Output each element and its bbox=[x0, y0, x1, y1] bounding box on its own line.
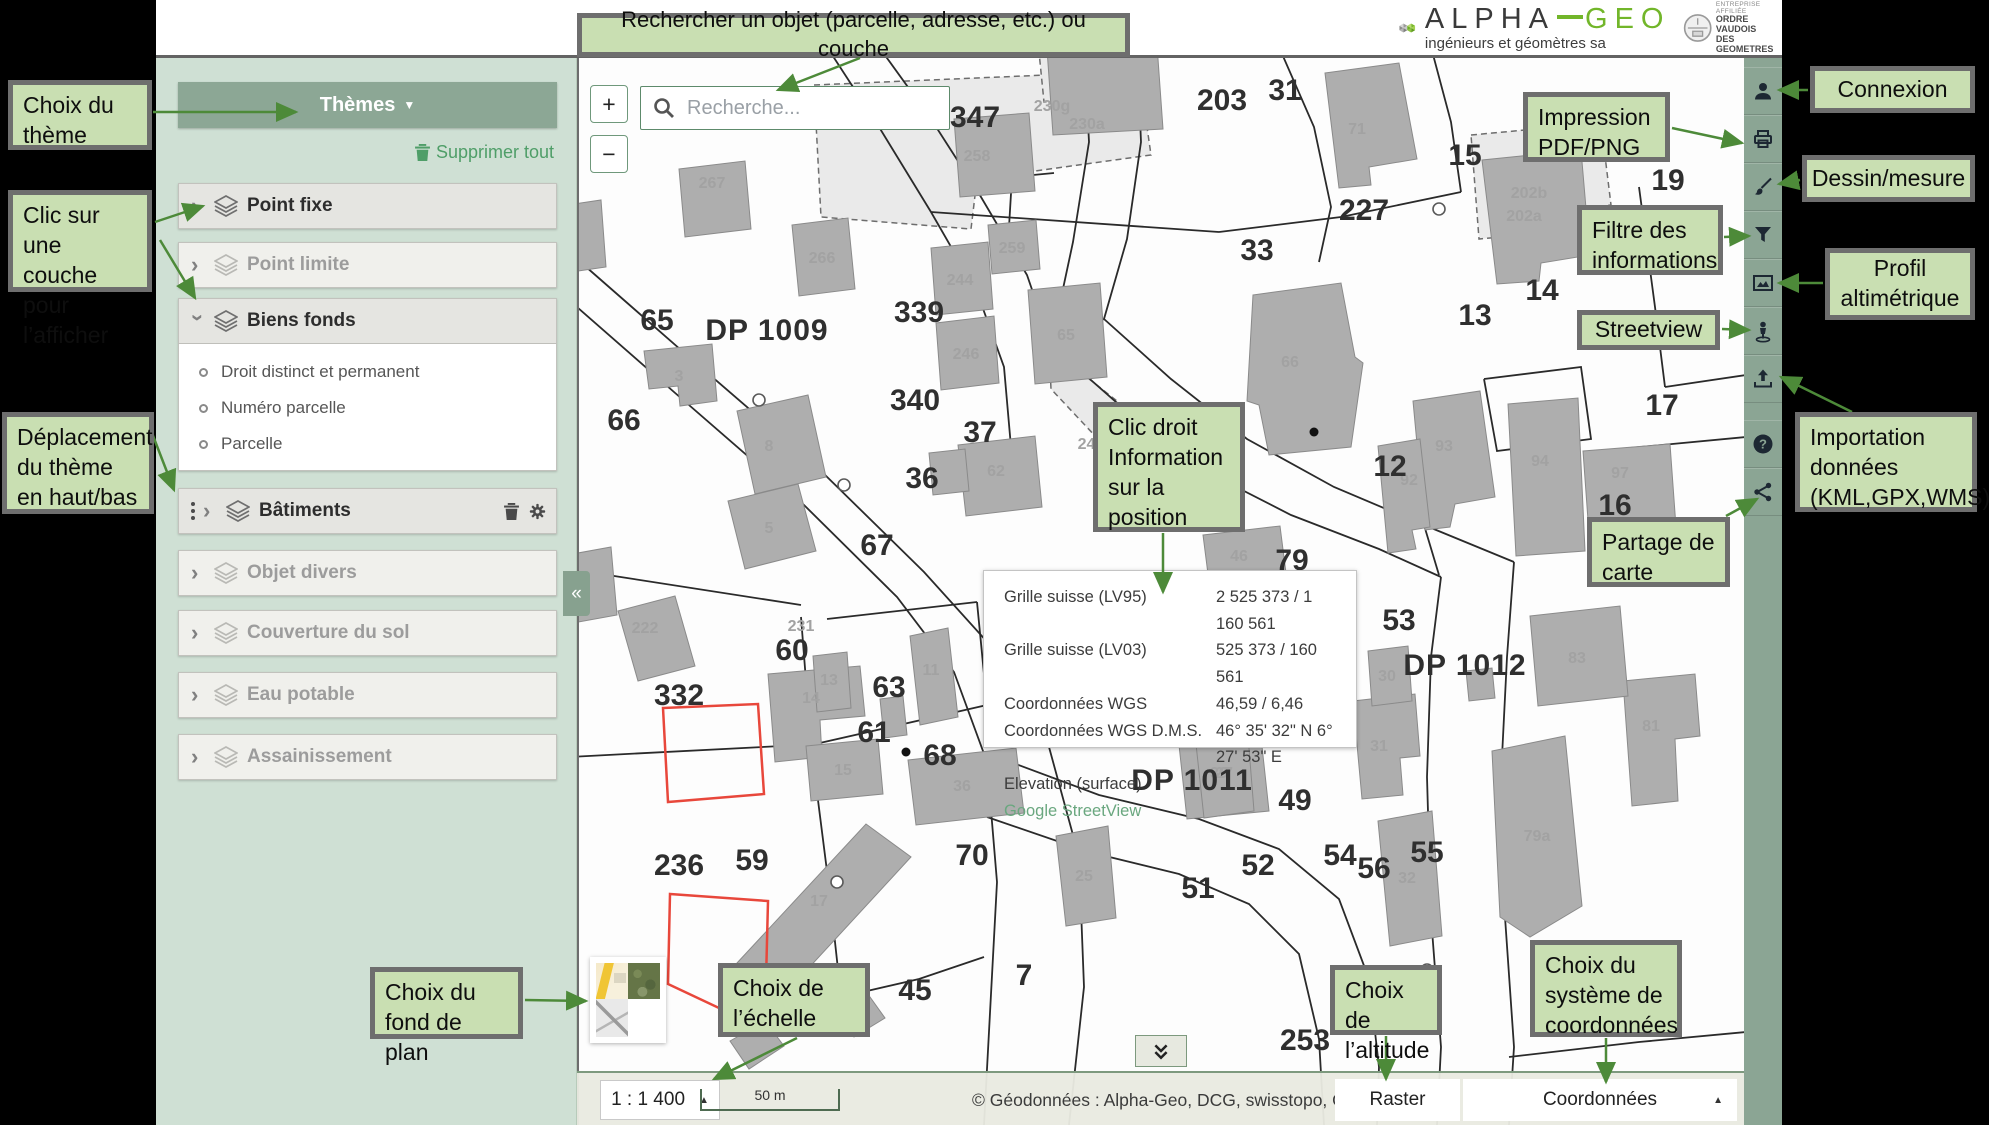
svg-text:244: 244 bbox=[947, 272, 974, 289]
brand-accent: GEO bbox=[1585, 3, 1670, 35]
popup-row-value: 46° 35' 32" N 6° 27' 53" E bbox=[1216, 718, 1338, 771]
callout-import: Importation données (KML,GPX,WMS) bbox=[1795, 412, 1977, 512]
sublayer-numero-parcelle[interactable]: Numéro parcelle bbox=[179, 390, 556, 426]
svg-text:97: 97 bbox=[1611, 465, 1629, 482]
svg-text:36: 36 bbox=[953, 778, 971, 795]
svg-text:230g: 230g bbox=[1034, 98, 1070, 115]
svg-text:36: 36 bbox=[905, 462, 938, 495]
svg-text:66: 66 bbox=[607, 404, 640, 437]
map-attribution: © Géodonnées : Alpha-Geo, DCG, swisstopo… bbox=[972, 1073, 1372, 1125]
logo-hexagons-icon bbox=[1398, 1, 1417, 55]
svg-text:202a: 202a bbox=[1506, 208, 1542, 225]
svg-text:54: 54 bbox=[1323, 839, 1357, 872]
layer-label: Bâtiments bbox=[259, 500, 351, 522]
scale-bar-label: 50 m bbox=[702, 1087, 838, 1103]
chevron-right-icon[interactable]: › bbox=[191, 252, 205, 278]
svg-text:53: 53 bbox=[1382, 604, 1415, 637]
badge-seal-icon bbox=[1683, 10, 1712, 46]
altitude-select[interactable]: Raster bbox=[1335, 1079, 1460, 1121]
app-canvas: ALPHAGEO ingénieurs et géomètres sa ENTR… bbox=[0, 0, 1989, 1125]
svg-text:246: 246 bbox=[953, 346, 980, 363]
svg-text:79a: 79a bbox=[1524, 828, 1551, 845]
popup-row-value bbox=[1216, 771, 1338, 798]
layer-label: Point limite bbox=[247, 254, 349, 276]
layer-row-biens-fonds[interactable]: ›Biens fonds bbox=[178, 298, 557, 344]
svg-text:17: 17 bbox=[810, 893, 828, 910]
popup-row-label: Grille suisse (LV03) bbox=[1004, 637, 1216, 690]
radio-circle-icon bbox=[199, 368, 208, 377]
svg-text:66: 66 bbox=[1281, 354, 1299, 371]
double-chevron-down-icon bbox=[1152, 1042, 1170, 1060]
svg-text:65: 65 bbox=[1057, 327, 1075, 344]
layers-icon bbox=[214, 562, 238, 584]
layers-icon bbox=[214, 684, 238, 706]
chevron-right-icon[interactable]: › bbox=[191, 193, 205, 219]
svg-text:59: 59 bbox=[735, 844, 768, 877]
search-icon bbox=[653, 97, 675, 119]
person-icon bbox=[1751, 79, 1775, 103]
chevron-right-icon[interactable]: › bbox=[191, 620, 205, 646]
clear-all-label: Supprimer tout bbox=[436, 142, 554, 163]
gear-icon[interactable] bbox=[529, 503, 546, 520]
svg-text:266: 266 bbox=[809, 250, 836, 267]
svg-text:70: 70 bbox=[955, 839, 988, 872]
sublayer-label: Numéro parcelle bbox=[221, 398, 346, 418]
popup-row-value: 46,59 / 6,46 bbox=[1216, 691, 1338, 718]
drag-handle-icon[interactable] bbox=[191, 502, 195, 520]
streetview-button[interactable] bbox=[1744, 307, 1782, 355]
popup-row-value: 525 373 / 160 561 bbox=[1216, 637, 1338, 690]
upload-icon bbox=[1751, 367, 1775, 391]
callout-profile: Profil altimétrique bbox=[1825, 248, 1975, 320]
callout-streetview: Streetview bbox=[1577, 310, 1720, 350]
layer-row-batiments[interactable]: ›Bâtiments bbox=[178, 488, 557, 534]
layer-label: Biens fonds bbox=[247, 310, 356, 332]
svg-text:5: 5 bbox=[765, 520, 774, 537]
layer-label: Eau potable bbox=[247, 684, 355, 706]
themes-dropdown-button[interactable]: Thèmes ▼ bbox=[178, 82, 557, 128]
svg-text:17: 17 bbox=[1645, 389, 1678, 422]
svg-text:347: 347 bbox=[950, 101, 1000, 134]
layer-row-eau-potable[interactable]: ›Eau potable bbox=[178, 672, 557, 718]
callout-draw: Dessin/mesure bbox=[1802, 155, 1975, 202]
svg-text:202b: 202b bbox=[1511, 185, 1548, 202]
svg-text:14: 14 bbox=[1525, 274, 1559, 307]
sublayer-label: Droit distinct et permanent bbox=[221, 362, 419, 382]
svg-text:13: 13 bbox=[820, 672, 838, 689]
import-data-button[interactable] bbox=[1744, 355, 1782, 403]
search-input[interactable] bbox=[685, 96, 915, 121]
brand-subtitle: ingénieurs et géomètres sa bbox=[1425, 36, 1671, 51]
chevron-right-icon[interactable]: › bbox=[185, 314, 211, 328]
svg-text:31: 31 bbox=[1370, 738, 1388, 755]
svg-text:62: 62 bbox=[987, 463, 1005, 480]
caret-up-icon: ▲ bbox=[1713, 1095, 1723, 1106]
layers-icon bbox=[214, 746, 238, 768]
coordinate-system-select[interactable]: Coordonnées ▲ bbox=[1463, 1079, 1737, 1121]
sublayer-label: Parcelle bbox=[221, 434, 282, 454]
callout-basemap: Choix du fond de plan bbox=[370, 967, 523, 1039]
basemap-blank-preview[interactable] bbox=[628, 999, 660, 1037]
layers-icon bbox=[226, 500, 250, 522]
chevron-right-icon[interactable]: › bbox=[191, 682, 205, 708]
svg-text:32: 32 bbox=[1398, 870, 1416, 887]
svg-text:52: 52 bbox=[1241, 849, 1274, 882]
svg-text:?: ? bbox=[1759, 437, 1767, 452]
popup-row: Grille suisse (LV03)525 373 / 160 561 bbox=[1004, 637, 1338, 690]
svg-text:8: 8 bbox=[765, 438, 774, 455]
svg-text:15: 15 bbox=[1448, 139, 1481, 172]
radio-circle-icon bbox=[199, 404, 208, 413]
layers-icon bbox=[214, 254, 238, 276]
popup-row-value: 2 525 373 / 1 160 561 bbox=[1216, 584, 1338, 637]
zoom-in-button[interactable]: + bbox=[590, 85, 628, 123]
trash-icon[interactable] bbox=[504, 503, 519, 520]
funnel-icon bbox=[1751, 223, 1775, 247]
svg-text:332: 332 bbox=[654, 679, 704, 712]
google-streetview-link[interactable]: Google StreetView bbox=[1004, 798, 1338, 825]
popup-row-label: Coordonnées WGS bbox=[1004, 691, 1216, 718]
print-button[interactable] bbox=[1744, 115, 1782, 163]
svg-text:83: 83 bbox=[1568, 650, 1586, 667]
clear-all-button[interactable]: Supprimer tout bbox=[415, 142, 554, 163]
popup-row: Grille suisse (LV95)2 525 373 / 1 160 56… bbox=[1004, 584, 1338, 637]
themes-panel: Thèmes ▼ Supprimer tout ›Point fixe›Poin… bbox=[156, 57, 577, 1125]
svg-text:30: 30 bbox=[1378, 668, 1396, 685]
zoom-out-button[interactable]: − bbox=[590, 135, 628, 173]
basemap-bw-preview[interactable] bbox=[596, 999, 628, 1037]
popup-row: Coordonnées WGS46,59 / 6,46 bbox=[1004, 691, 1338, 718]
status-bar: 1 : 1 400 ▲ 50 m © Géodonnées : Alpha-Ge… bbox=[577, 1071, 1744, 1125]
svg-text:203: 203 bbox=[1197, 84, 1247, 117]
caret-down-icon: ▼ bbox=[403, 98, 415, 112]
badge-line-1: ENTREPRISE AFFILIÉE bbox=[1716, 1, 1780, 15]
svg-text:258: 258 bbox=[964, 148, 991, 165]
help-button[interactable]: ? bbox=[1744, 420, 1782, 468]
callout-theme-choice: Choix du thème bbox=[8, 80, 152, 150]
svg-text:93: 93 bbox=[1435, 438, 1453, 455]
layer-label: Couverture du sol bbox=[247, 622, 410, 644]
affiliation-badge: ENTREPRISE AFFILIÉE ORDRE VAUDOIS DES GE… bbox=[1683, 1, 1781, 55]
layer-label: Assainissement bbox=[247, 746, 392, 768]
login-button[interactable] bbox=[1744, 67, 1782, 115]
svg-text:37: 37 bbox=[963, 416, 996, 449]
callout-print: Impression PDF/PNG bbox=[1523, 92, 1670, 162]
popup-row-label: Elevation (surface) bbox=[1004, 771, 1216, 798]
svg-text:94: 94 bbox=[1531, 453, 1549, 470]
svg-text:DP 1009: DP 1009 bbox=[705, 314, 828, 347]
svg-text:227: 227 bbox=[1339, 194, 1389, 227]
layers-icon bbox=[214, 310, 238, 332]
svg-text:65: 65 bbox=[640, 304, 673, 337]
scale-bar: 50 m bbox=[700, 1089, 840, 1111]
layer-row-point-limite[interactable]: ›Point limite bbox=[178, 242, 557, 288]
badge-line-3: DES GEOMETRES bbox=[1716, 35, 1780, 55]
svg-text:259: 259 bbox=[999, 240, 1026, 257]
chevron-right-icon[interactable]: › bbox=[203, 498, 217, 524]
svg-text:33: 33 bbox=[1240, 234, 1273, 267]
callout-theme-move: Déplacement du thème en haut/bas bbox=[2, 412, 154, 514]
layers-icon bbox=[214, 622, 238, 644]
popup-row-label: Grille suisse (LV95) bbox=[1004, 584, 1216, 637]
svg-text:81: 81 bbox=[1642, 718, 1660, 735]
brush-icon bbox=[1751, 175, 1775, 199]
position-info-popup: Grille suisse (LV95)2 525 373 / 1 160 56… bbox=[983, 570, 1357, 748]
svg-text:55: 55 bbox=[1410, 836, 1443, 869]
right-toolbar: ? bbox=[1744, 57, 1782, 1125]
callout-search-hint: Rechercher un objet (parcelle, adresse, … bbox=[577, 13, 1130, 57]
brand-main: ALPHA bbox=[1425, 3, 1555, 35]
svg-text:45: 45 bbox=[898, 974, 931, 1007]
map-search-box[interactable] bbox=[640, 86, 950, 130]
share-icon bbox=[1751, 480, 1775, 504]
basemap-switcher[interactable] bbox=[590, 957, 666, 1043]
area-chart-icon bbox=[1751, 271, 1775, 295]
svg-text:56: 56 bbox=[1357, 852, 1390, 885]
svg-text:60: 60 bbox=[775, 634, 808, 667]
svg-text:267: 267 bbox=[699, 175, 726, 192]
company-logo: ALPHAGEO ingénieurs et géomètres sa ENTR… bbox=[1398, 1, 1780, 55]
svg-text:14: 14 bbox=[802, 690, 820, 707]
statusbar-collapse-button[interactable] bbox=[1135, 1035, 1187, 1067]
svg-text:236: 236 bbox=[654, 849, 704, 882]
help-icon: ? bbox=[1751, 432, 1775, 456]
svg-text:46: 46 bbox=[1230, 548, 1248, 565]
layer-row-point-fixe[interactable]: ›Point fixe bbox=[178, 183, 557, 229]
svg-text:13: 13 bbox=[1458, 299, 1491, 332]
svg-text:7: 7 bbox=[1016, 959, 1033, 992]
sublayer-parcelle[interactable]: Parcelle bbox=[179, 426, 556, 462]
popup-rows: Grille suisse (LV95)2 525 373 / 1 160 56… bbox=[1004, 584, 1338, 798]
brand-dash bbox=[1557, 15, 1583, 19]
callout-connexion: Connexion bbox=[1810, 66, 1975, 113]
callout-coords: Choix du système de coordonnées bbox=[1530, 940, 1682, 1037]
basemap-street-preview[interactable] bbox=[596, 963, 628, 999]
layer-row-assainissement[interactable]: ›Assainissement bbox=[178, 734, 557, 780]
layer-label: Point fixe bbox=[247, 195, 333, 217]
chevron-right-icon[interactable]: › bbox=[191, 744, 205, 770]
svg-text:340: 340 bbox=[890, 384, 940, 417]
sidebar-collapse-button[interactable]: « bbox=[563, 571, 590, 616]
layer-list: ›Point fixe›Point limite›Biens fondsDroi… bbox=[178, 183, 557, 780]
callout-share: Partage de carte bbox=[1587, 517, 1730, 587]
popup-row-label: Coordonnées WGS D.M.S. bbox=[1004, 718, 1216, 771]
svg-text:230a: 230a bbox=[1069, 116, 1105, 133]
sublayer-droit-distinct-et-permanent[interactable]: Droit distinct et permanent bbox=[179, 354, 556, 390]
scale-value: 1 : 1 400 bbox=[611, 1089, 685, 1111]
radio-circle-icon bbox=[199, 440, 208, 449]
svg-text:71: 71 bbox=[1348, 121, 1366, 138]
layers-icon bbox=[214, 195, 238, 217]
svg-text:253: 253 bbox=[1280, 1024, 1330, 1057]
draw-measure-button[interactable] bbox=[1744, 163, 1782, 211]
themes-label: Thèmes bbox=[320, 94, 396, 117]
svg-text:231: 231 bbox=[788, 618, 815, 635]
svg-text:12: 12 bbox=[1373, 450, 1406, 483]
coordinate-system-value: Coordonnées bbox=[1543, 1089, 1657, 1111]
svg-text:68: 68 bbox=[923, 739, 956, 772]
popup-row: Elevation (surface) bbox=[1004, 771, 1338, 798]
elevation-profile-button[interactable] bbox=[1744, 259, 1782, 307]
printer-icon bbox=[1751, 127, 1775, 151]
svg-text:51: 51 bbox=[1181, 872, 1214, 905]
sublayer-panel: Droit distinct et permanentNuméro parcel… bbox=[178, 344, 557, 471]
callout-layer-click: Clic sur une couche pour l’afficher bbox=[8, 190, 152, 292]
share-button[interactable] bbox=[1744, 468, 1782, 516]
svg-text:3: 3 bbox=[675, 368, 684, 385]
trash-icon bbox=[415, 144, 430, 161]
popup-row: Coordonnées WGS D.M.S.46° 35' 32" N 6° 2… bbox=[1004, 718, 1338, 771]
layer-row-couverture-du-sol[interactable]: ›Couverture du sol bbox=[178, 610, 557, 656]
svg-text:222: 222 bbox=[632, 620, 659, 637]
callout-scale: Choix de l’échelle bbox=[718, 963, 870, 1037]
filter-button[interactable] bbox=[1744, 211, 1782, 259]
basemap-aerial-preview[interactable] bbox=[628, 963, 660, 999]
svg-text:19: 19 bbox=[1651, 164, 1684, 197]
layer-label: Objet divers bbox=[247, 562, 357, 584]
svg-text:31: 31 bbox=[1268, 74, 1301, 107]
pegman-icon bbox=[1751, 319, 1775, 343]
layer-row-objet-divers[interactable]: ›Objet divers bbox=[178, 550, 557, 596]
svg-text:61: 61 bbox=[857, 716, 890, 749]
chevron-right-icon[interactable]: › bbox=[191, 560, 205, 586]
svg-text:DP 1012: DP 1012 bbox=[1403, 649, 1526, 682]
svg-text:63: 63 bbox=[872, 671, 905, 704]
svg-text:15: 15 bbox=[834, 762, 852, 779]
svg-text:25: 25 bbox=[1075, 868, 1093, 885]
svg-text:67: 67 bbox=[860, 529, 893, 562]
svg-text:11: 11 bbox=[923, 662, 940, 679]
badge-line-2: ORDRE VAUDOIS bbox=[1716, 15, 1780, 35]
svg-text:339: 339 bbox=[894, 296, 944, 329]
callout-altitude: Choix de l’altitude bbox=[1330, 965, 1442, 1035]
callout-right-click: Clic droit Information sur la position bbox=[1093, 402, 1245, 532]
callout-filter: Filtre des informations bbox=[1577, 205, 1723, 275]
